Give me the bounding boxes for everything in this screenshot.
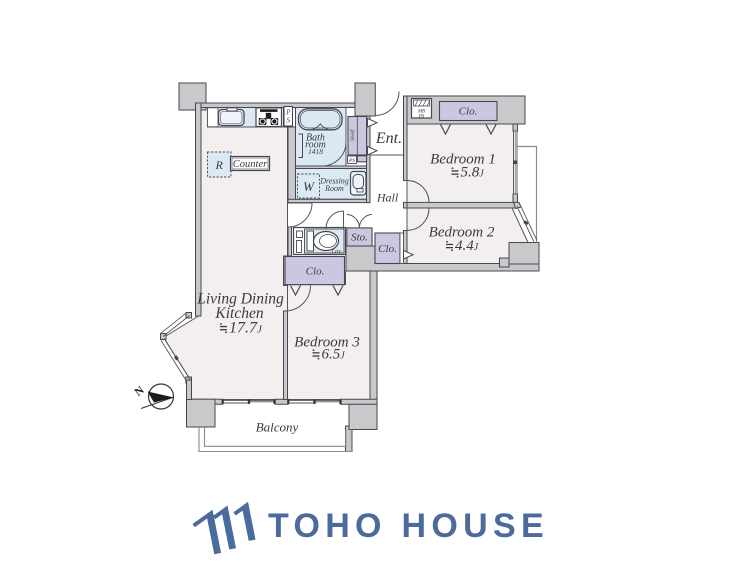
svg-text:P: P	[285, 109, 291, 117]
svg-text:Clo.: Clo.	[306, 266, 325, 278]
svg-text:PS: PS	[418, 115, 425, 120]
svg-text:R: R	[215, 158, 224, 172]
svg-text:Shelf: Shelf	[349, 129, 356, 141]
svg-text:W: W	[303, 179, 315, 194]
svg-text:Balcony: Balcony	[256, 420, 299, 435]
svg-text:Clo.: Clo.	[378, 243, 397, 255]
svg-text:Hall: Hall	[376, 191, 399, 205]
svg-text:Ent.: Ent.	[375, 130, 402, 147]
svg-text:Clo.: Clo.	[459, 106, 478, 118]
svg-text:Sto.: Sto.	[351, 232, 368, 244]
svg-text:1418: 1418	[308, 147, 323, 156]
svg-text:TOHO HOUSE: TOHO HOUSE	[268, 507, 549, 545]
svg-text:PS: PS	[348, 158, 355, 164]
svg-text:S: S	[287, 117, 291, 125]
svg-text:Lav.: Lav.	[331, 248, 343, 255]
svg-text:Counter: Counter	[233, 159, 268, 170]
svg-text:Room: Room	[324, 184, 344, 193]
